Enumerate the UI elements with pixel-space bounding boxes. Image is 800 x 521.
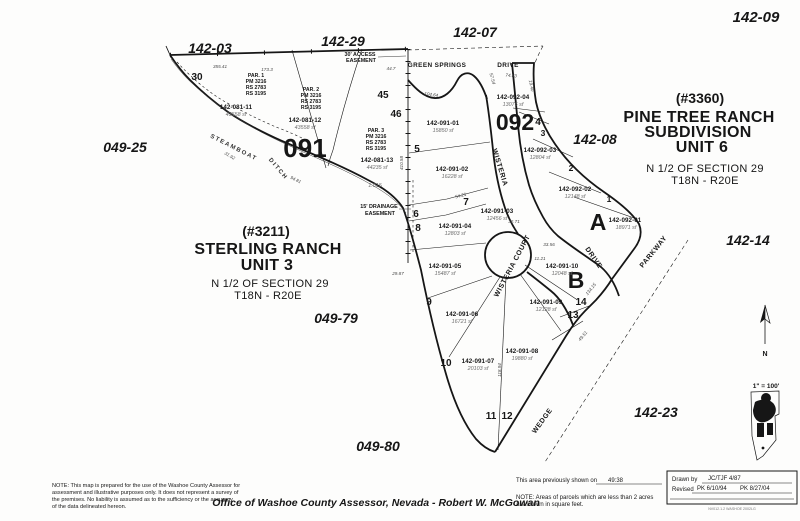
dimension: 32.71 [508, 219, 520, 224]
street-drive-top: DRIVE [497, 62, 519, 69]
scale-note: 1" = 100' [753, 383, 780, 390]
sterling-permit: (#3211) [242, 223, 289, 239]
lot-number: 7 [463, 197, 469, 208]
parcel-acres: 1.015 [368, 183, 382, 189]
lot-number: 2 [569, 163, 574, 173]
sq-ft-note-line1: NOTE: Areas of parcels which are less th… [516, 495, 653, 501]
parcel-apn: 142-091-09 [530, 299, 563, 306]
parcel-area: 18971 sf [616, 225, 637, 231]
sterling-ranch-title: (#3211) STERLING RANCH UNIT 3 N 1/2 OF S… [194, 223, 341, 302]
dimension: 33.56 [543, 242, 555, 247]
lot-number: 6 [413, 209, 419, 220]
parcel-area: 15487 sf [435, 271, 456, 277]
parcel-apn: 142-091-07 [462, 358, 495, 365]
sheet-ref-142-08: 142-08 [573, 131, 617, 147]
lot-number: 1 [607, 194, 612, 204]
disclaimer-line: assessment and illustrative purposes onl… [52, 490, 239, 496]
dimension: 94.81 [289, 175, 302, 185]
lot-number: 14 [575, 297, 587, 308]
dimension: 44.7 [387, 66, 396, 71]
par-note-1: PAR. 1 PM 3216 RS 2783 RS 3195 [246, 73, 267, 97]
sterling-section: N 1/2 OF SECTION 29 [211, 278, 329, 290]
parcel-apn: 142-091-06 [446, 311, 479, 318]
prev-shown-value: 49:38 [608, 478, 624, 484]
dimension: 173.3 [261, 67, 273, 72]
par-note-2: PAR. 2 PM 3216 RS 2783 RS 3195 [301, 87, 322, 111]
parcel-apn: 142-091-05 [429, 263, 462, 270]
par3-line4: RS 3195 [366, 146, 386, 152]
parcel-area: 19880 sf [512, 356, 533, 362]
lot-number: 30 [191, 72, 203, 83]
sheet-ref-142-14: 142-14 [726, 232, 770, 248]
title-block: Drawn by JC/TJF 4/87 Revised PK 6/10/94 … [667, 471, 797, 511]
parcel-area: 13076 sf [503, 102, 524, 108]
parcel-apn: 142-081-11 [220, 104, 253, 111]
sheet-ref-049-80: 049-80 [356, 438, 400, 454]
previously-shown-note: This area previously shown on 49:38 [516, 478, 662, 484]
disclaimer-line: the premises. No liability is assumed as… [52, 497, 233, 503]
parcel-area: 15850 sf [433, 128, 454, 134]
parcel-area: 16721 sf [452, 319, 473, 325]
drawn-by-value: JC/TJF 4/87 [708, 476, 741, 482]
parcel-apn: 142-091-04 [439, 223, 472, 230]
parcel-apn: 142-091-10 [546, 263, 579, 270]
street-wedge: WEDGE [531, 407, 554, 435]
dimension: 11.21 [534, 256, 546, 261]
block-092-label: 092 [496, 109, 534, 135]
parcel-apn: 142-091-02 [436, 166, 469, 173]
sterling-unit: UNIT 3 [241, 257, 293, 274]
dimension: 118.94 [497, 363, 502, 377]
lot-number: 10 [440, 358, 452, 369]
lot-number: 4 [535, 117, 541, 128]
sheet-ref-142-07: 142-07 [453, 24, 498, 40]
adjacent-sheet-refs: 142-03 142-29 142-07 142-09 049-25 142-0… [103, 9, 780, 454]
pine-tree-ranch-title: (#3360) PINE TREE RANCH SUBDIVISION UNIT… [623, 90, 774, 187]
sheet-ref-049-25: 049-25 [103, 139, 147, 155]
dimension: 410.58 [399, 156, 404, 170]
parcel-apn: 142-091-08 [506, 348, 539, 355]
par1-line4: RS 3195 [246, 91, 266, 97]
sterling-township: T18N - R20E [234, 290, 302, 302]
parcel-apn: 142-081-13 [361, 157, 394, 164]
lot-number: 13 [567, 310, 579, 321]
parcel-area: 12048 sf [552, 271, 573, 277]
parcel-area: 12148 sf [565, 194, 586, 200]
sq-ft-note-line2: are shown in square feet. [516, 502, 584, 508]
drainage-easement-line1: 15' DRAINAGE [360, 204, 398, 210]
parcel-apn: 142-092-02 [559, 186, 592, 193]
street-green-springs: GREEN SPRINGS [408, 62, 467, 69]
prev-shown-label: This area previously shown on [516, 478, 597, 484]
parcel-area: 16228 sf [442, 174, 463, 180]
lot-number: 45 [377, 90, 389, 101]
parcel-apn: 142-091-01 [427, 120, 460, 127]
county-locator-inset [751, 391, 779, 460]
dimension: 29.87 [391, 271, 404, 276]
survey-dimensions: 355.41 173.3 44.7 57.54 74.83 104.64 410… [213, 64, 597, 377]
street-drive-right: DRIVE [583, 246, 603, 270]
sheet-ref-142-09: 142-09 [733, 9, 780, 26]
square-feet-note: NOTE: Areas of parcels which are less th… [516, 495, 653, 508]
revised-label: Revised [672, 487, 694, 493]
parcel-area: 43558 sf [226, 112, 247, 118]
parcel-area: 44235 sf [367, 165, 388, 171]
parcel-area: 12128 sf [536, 307, 557, 313]
pinetree-permit: (#3360) [676, 90, 724, 106]
title-block-fine-print: NV012.1.2 WASHOE 2002LG [708, 507, 756, 511]
par2-line4: RS 3195 [301, 105, 321, 111]
parcel-area: 12456 sf [487, 216, 508, 222]
street-wisteria: WISTERIA [490, 148, 508, 187]
revised-value-1: PK 6/10/94 [697, 486, 727, 492]
street-wisteria-court: WISTERIA COURT [493, 234, 532, 298]
dimension: 355.41 [213, 64, 227, 69]
drawn-by-label: Drawn by [672, 477, 697, 483]
dimension: 31.92 [224, 151, 237, 161]
pinetree-unit: UNIT 6 [676, 139, 728, 156]
lot-number: 12 [501, 411, 513, 422]
sheet-ref-142-03: 142-03 [188, 40, 232, 56]
disclaimer-line: NOTE: This map is prepared for the use o… [52, 483, 240, 489]
pinetree-section: N 1/2 OF SECTION 29 [646, 163, 764, 175]
dimension: 57.54 [489, 72, 497, 85]
parcel-area: 20103 sf [467, 366, 489, 372]
par-note-3: PAR. 3 PM 3216 RS 2783 RS 3195 [366, 128, 387, 152]
parcel-apn: 142-081-12 [289, 117, 322, 124]
parcel-map-canvas: 142-03 142-29 142-07 142-09 049-25 142-0… [0, 0, 800, 521]
lot-number: 9 [426, 297, 432, 308]
drainage-easement-line2: EASEMENT [365, 211, 396, 217]
sheet-ref-142-29: 142-29 [321, 33, 365, 49]
lot-number: 8 [415, 223, 421, 234]
assessor-parcel-map-page: 142-03 142-29 142-07 142-09 049-25 142-0… [0, 0, 800, 521]
north-arrow: N [760, 305, 770, 358]
parcel-apn: 142-092-01 [609, 217, 642, 224]
block-091-label: 091 [283, 133, 326, 163]
lot-number: 11 [486, 411, 497, 422]
block-a-label: A [590, 209, 607, 235]
disclaimer-line: of the data delineated hereon. [52, 504, 127, 510]
lot-number: 3 [541, 128, 546, 138]
sterling-name: STERLING RANCH [194, 241, 341, 258]
assessor-office-title: Office of Washoe County Assessor, Nevada… [212, 497, 540, 509]
parcel-area: 43558 sf [295, 125, 316, 131]
parcel-apn: 142-091-03 [481, 208, 514, 215]
street-parkway: PARKWAY [639, 235, 669, 270]
dimension: 74.83 [505, 73, 517, 79]
revised-value-2: PK 8/27/04 [740, 486, 770, 492]
dimension: 49.51 [577, 330, 589, 342]
access-easement-line2: EASEMENT [346, 58, 377, 64]
lot-number: 5 [414, 144, 420, 155]
lot-number: 46 [390, 109, 402, 120]
parcel-area: 12803 sf [445, 231, 466, 237]
parcel-area: 12804 sf [530, 155, 551, 161]
dimension: 19.40 [528, 80, 535, 93]
sheet-ref-049-79: 049-79 [314, 310, 358, 326]
parcel-apn: 142-092-04 [497, 94, 530, 101]
parcel-apn: 142-092-03 [524, 147, 557, 154]
pinetree-township: T18N - R20E [671, 175, 739, 187]
north-label: N [762, 351, 767, 358]
sheet-ref-142-23: 142-23 [634, 404, 678, 420]
dimension: 134.15 [585, 282, 598, 297]
dimension: 104.64 [424, 91, 439, 98]
